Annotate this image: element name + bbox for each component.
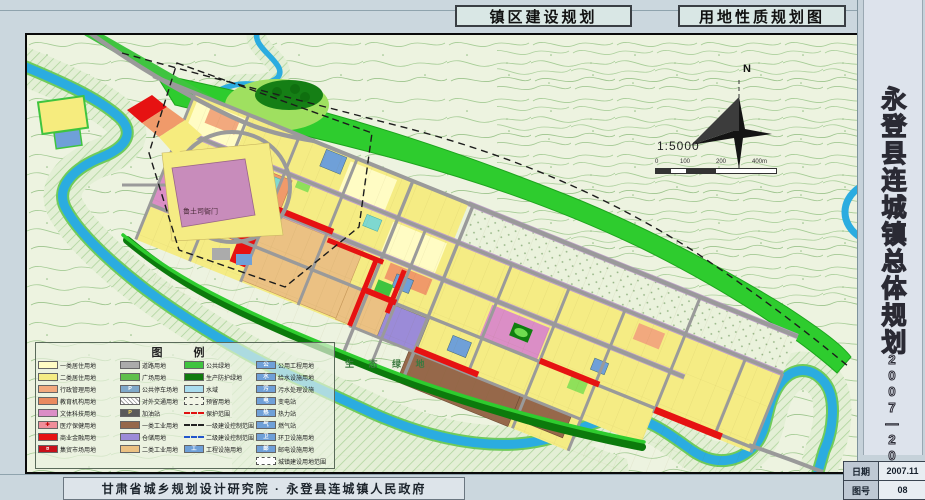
legend-swatch [184, 361, 204, 369]
legend-swatch [120, 373, 140, 381]
legend-item: 城镇建设用地范围 [256, 455, 334, 467]
legend-item: 电变电站 [256, 395, 334, 407]
legend-swatch [184, 397, 204, 405]
legend-glyph: 公 [263, 362, 268, 367]
legend-swatch [184, 436, 204, 438]
legend-glyph: 水 [263, 374, 268, 379]
legend-swatch: 水 [256, 373, 276, 381]
legend-glyph: 气 [263, 422, 268, 427]
legend-swatch: P [120, 385, 140, 393]
legend-glyph: ¤ [46, 446, 49, 451]
scale-bar: 0 100 200 400m [655, 157, 777, 174]
legend-swatch [184, 424, 204, 426]
legend-item: 对外交通用地 [120, 395, 184, 407]
legend-item: 热热力站 [256, 407, 334, 419]
legend-glyph: 电 [263, 398, 268, 403]
legend-swatch: 热 [256, 409, 276, 417]
side-panel: 永登县连城镇总体规划 2007—2020 [857, 0, 925, 500]
footer-credit: 甘肃省城乡规划设计研究院 · 永登县连城镇人民政府 [63, 477, 465, 500]
sheet-title-vertical: 永登县连城镇总体规划 [874, 86, 910, 356]
legend-glyph: P [128, 386, 132, 391]
legend-glyph: 热 [263, 410, 268, 415]
date-value: 2007.11 [879, 462, 925, 480]
legend-glyph: 污 [263, 386, 268, 391]
legend-swatch [184, 385, 204, 393]
legend-glyph: P [128, 410, 132, 415]
legend-label: 城镇建设用地范围 [278, 452, 358, 470]
legend-swatch: ✚ [38, 421, 58, 429]
legend-swatch: 卫 [256, 433, 276, 441]
legend-glyph: 工 [191, 446, 196, 451]
legend-glyph: 邮 [263, 446, 268, 451]
legend-item: P公共停车场地 [120, 383, 184, 395]
info-row-date: 日期 2007.11 [844, 462, 925, 481]
legend-item: 一类工业用地 [120, 419, 184, 431]
scale-segments [655, 168, 777, 174]
legend-item: 生产防护绿地 [184, 371, 256, 383]
legend-glyph: 卫 [263, 434, 268, 439]
map-title-secondary: 用地性质规划图 [678, 5, 846, 27]
sheet-no-label: 图号 [844, 481, 879, 499]
legend-swatch [120, 397, 140, 405]
legend-swatch: 气 [256, 421, 276, 429]
eco-green-label: 生 态 绿 地 [345, 357, 431, 370]
yamen-label: 鲁土司衙门 [183, 201, 233, 219]
legend-swatch [38, 397, 58, 405]
legend-swatch [38, 433, 58, 441]
legend-swatch [184, 373, 204, 381]
legend-swatch [184, 412, 204, 414]
legend-swatch: 公 [256, 361, 276, 369]
legend-swatch [120, 445, 140, 453]
legend-glyph: ✚ [46, 422, 51, 427]
legend-swatch: 邮 [256, 445, 276, 453]
plan-sheet: { "titles": { "primary": "镇区建设规划", "seco… [0, 0, 925, 500]
legend-column: 公公用工程用地水给水设施用地污污水处理设施电变电站热热力站气燃气站卫环卫设施用地… [256, 359, 334, 467]
legend-column: 道路用地广场用地P公共停车场地对外交通用地P加油站一类工业用地仓储用地二类工业用… [120, 359, 184, 467]
legend-swatch [38, 409, 58, 417]
map-title-primary: 镇区建设规划 [455, 5, 632, 27]
legend-swatch: 污 [256, 385, 276, 393]
date-label: 日期 [844, 462, 879, 480]
legend: 图 例 一类居住用地二类居住用地行政管理用地教育机构用地文体科技用地✚医疗保健用… [35, 342, 335, 469]
legend-swatch [38, 373, 58, 381]
scale-ratio: 1:5000 [657, 139, 700, 153]
legend-swatch [38, 385, 58, 393]
legend-column: 一类居住用地二类居住用地行政管理用地教育机构用地文体科技用地✚医疗保健用地商业金… [38, 359, 120, 467]
north-label: N [743, 63, 751, 75]
info-table: 日期 2007.11 图号 08 [843, 461, 925, 500]
legend-label: 集贸市场用地 [60, 440, 120, 458]
bottom-rule-line [0, 474, 858, 475]
legend-swatch [120, 421, 140, 429]
info-row-number: 图号 08 [844, 481, 925, 499]
sheet-no-value: 08 [879, 481, 925, 499]
scale-ticks: 0 100 200 400m [655, 157, 777, 167]
legend-swatch [120, 361, 140, 369]
legend-swatch: 电 [256, 397, 276, 405]
map-frame: 生 态 绿 地 鲁土司衙门 N 1:5000 0 100 200 400m 图 … [25, 33, 859, 474]
legend-swatch: P [120, 409, 140, 417]
legend-item: 工工程设施用地 [184, 443, 256, 455]
legend-item: 污污水处理设施 [256, 383, 334, 395]
legend-swatch [256, 457, 276, 465]
legend-column: 公共绿地生产防护绿地水域预留用地保护范围一级建设控制范围二级建设控制范围工工程设… [184, 359, 256, 467]
legend-swatch: 工 [184, 445, 204, 453]
legend-swatch [38, 361, 58, 369]
legend-item: ¤集贸市场用地 [38, 443, 120, 455]
legend-item: 二级建设控制范围 [184, 431, 256, 443]
legend-columns: 一类居住用地二类居住用地行政管理用地教育机构用地文体科技用地✚医疗保健用地商业金… [38, 359, 332, 467]
legend-item: 一级建设控制范围 [184, 419, 256, 431]
legend-item: 二类工业用地 [120, 443, 184, 455]
legend-swatch [120, 433, 140, 441]
legend-swatch: ¤ [38, 445, 58, 453]
